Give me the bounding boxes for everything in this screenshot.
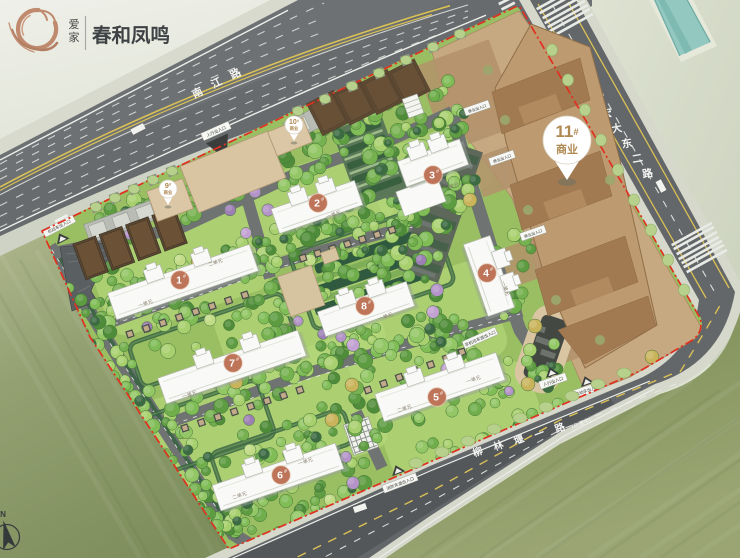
svg-text:春和凤鸣: 春和凤鸣 — [92, 24, 170, 47]
svg-text:#: # — [490, 267, 493, 273]
svg-text:2: 2 — [314, 198, 320, 210]
svg-text:6: 6 — [277, 470, 283, 482]
svg-text:爱: 爱 — [69, 18, 80, 31]
svg-text:商业: 商业 — [290, 125, 299, 132]
svg-text:4: 4 — [483, 268, 489, 280]
svg-text:#: # — [368, 300, 371, 306]
svg-text:5: 5 — [433, 392, 439, 404]
svg-text:商业: 商业 — [164, 189, 173, 196]
svg-text:3: 3 — [429, 170, 435, 182]
svg-text:N: N — [0, 510, 6, 519]
svg-text:8: 8 — [361, 301, 367, 313]
svg-text:#: # — [183, 274, 186, 280]
svg-text:1: 1 — [176, 275, 182, 287]
svg-text:#: # — [236, 357, 239, 363]
svg-text:商业: 商业 — [556, 142, 578, 156]
svg-text:#: # — [284, 469, 287, 475]
svg-text:#: # — [440, 391, 443, 397]
svg-text:家: 家 — [69, 30, 80, 44]
svg-text:#: # — [321, 197, 324, 203]
svg-text:#: # — [436, 169, 439, 175]
svg-text:7: 7 — [229, 358, 235, 370]
